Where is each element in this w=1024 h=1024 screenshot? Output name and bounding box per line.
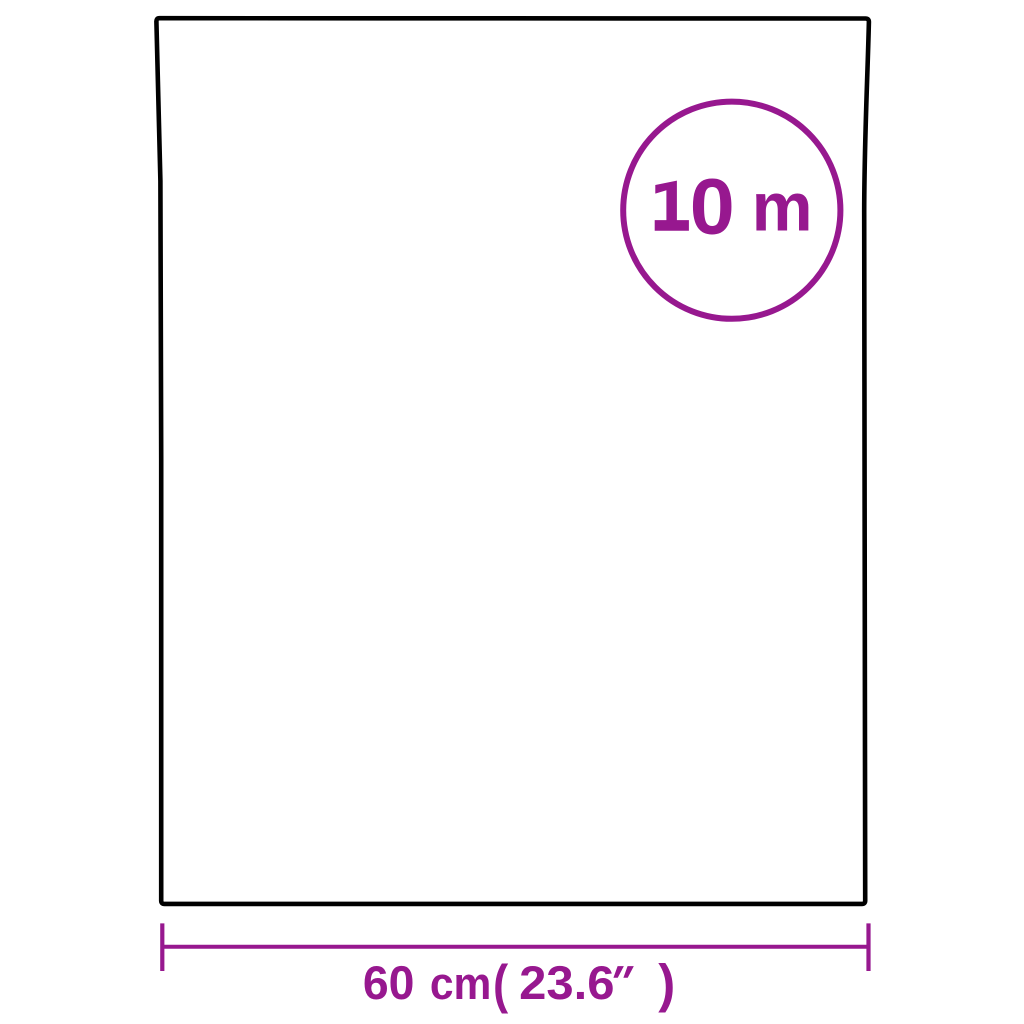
svg-text:60: 60 bbox=[363, 957, 415, 1010]
svg-text:(: ( bbox=[493, 954, 509, 1014]
svg-text:23.6: 23.6 bbox=[519, 957, 614, 1010]
svg-text:cm: cm bbox=[430, 958, 491, 1009]
svg-text:m: m bbox=[752, 169, 813, 246]
svg-text:): ) bbox=[658, 954, 675, 1013]
svg-text:0: 0 bbox=[690, 162, 735, 250]
